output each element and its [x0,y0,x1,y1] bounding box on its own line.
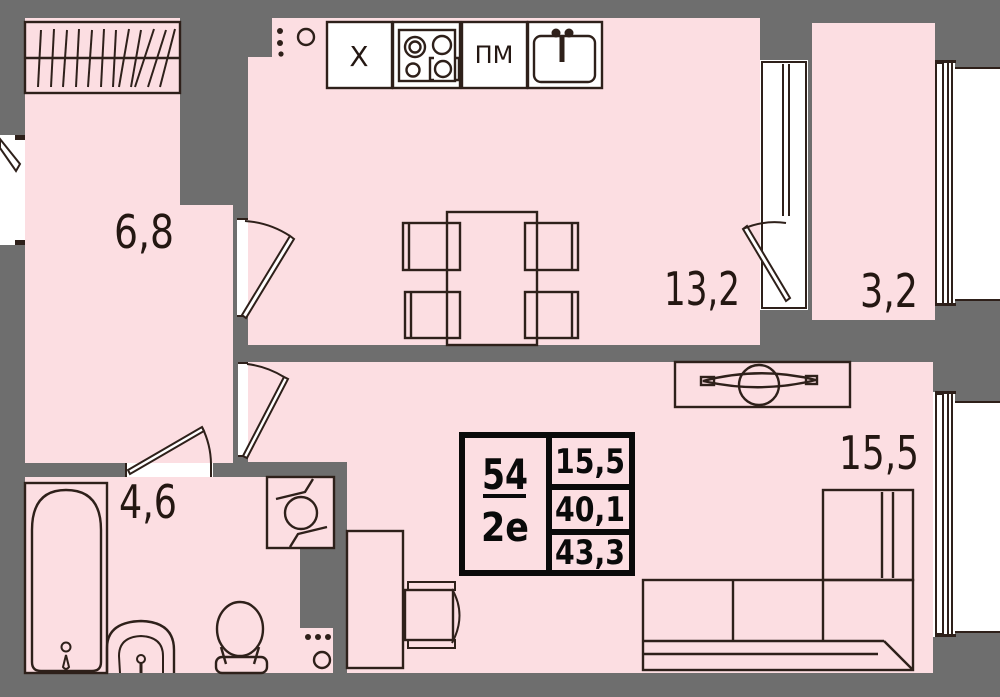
balcony-area-label: 3,2 [860,264,918,318]
living-door-opening [238,362,248,457]
info-area-main: 40,1 [555,490,625,530]
floor-plan-canvas: 6,8 13,2 3,2 4,6 15,5 Х ПМ 54 2е 15,5 40… [0,0,1000,697]
window-tick-2 [935,303,956,306]
fridge-label: Х [349,40,368,73]
entrance-door [0,135,25,245]
info-area-living: 15,5 [555,442,625,482]
entrance-door-jamb-bottom [15,240,25,245]
faucet-handle-left [552,29,561,38]
kitchen-area-label: 13,2 [664,262,740,316]
bathroom-area-label: 4,6 [119,475,177,529]
kitchen-sink [528,22,602,88]
balcony-exterior [955,68,1000,300]
entrance-door-jamb-top [15,135,25,140]
dishwasher-label: ПМ [475,41,514,69]
floor-plan: 6,8 13,2 3,2 4,6 15,5 Х ПМ 54 2е 15,5 40… [0,0,1000,697]
flat-type: 2е [481,505,529,551]
living-exterior [955,402,1000,632]
window-tick-3 [935,391,956,394]
living-area-label: 15,5 [839,426,919,480]
kitchen-door-opening [237,218,248,317]
info-area-total: 43,3 [555,533,625,573]
window-tick-1 [935,60,956,63]
window-tick-4 [935,634,956,637]
stove [393,22,460,88]
flat-number: 54 [482,450,528,499]
faucet-handle-right [565,29,574,38]
hallway-area-label: 6,8 [114,205,174,259]
